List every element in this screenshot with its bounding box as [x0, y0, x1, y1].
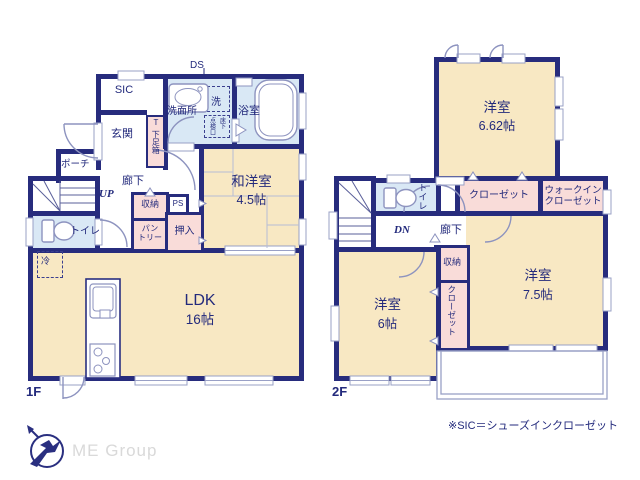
dn-label: DN: [394, 224, 410, 237]
storage-1f-label: 収納: [131, 199, 169, 209]
opening-2fa-door: [436, 177, 464, 185]
arc-entry: [64, 124, 98, 158]
shoe-box-label: 下足箱: [151, 130, 160, 166]
window-bath: [299, 93, 306, 129]
window-2fa-top2: [502, 54, 525, 63]
window-2fa-top1: [457, 54, 480, 63]
opening-kitchen-door: [60, 376, 85, 385]
washroom-label: 洗面所: [167, 106, 197, 118]
brand-logo-text: ME Group: [72, 441, 157, 461]
pantry-label: パントリー: [131, 224, 169, 242]
toilet-2f-bowl: [396, 190, 416, 207]
toilet-1f-label: トイレ: [70, 226, 100, 238]
floor-1f-label: 1F: [26, 385, 41, 400]
window-washitsu-b: [299, 219, 306, 245]
floorplan-canvas: 洗 床下点検口 冷: [0, 0, 640, 480]
up-label: UP: [99, 188, 114, 201]
vanity-tap: [198, 87, 202, 91]
vanity-bowl: [175, 89, 201, 106]
shoe-t-label: T: [147, 118, 165, 127]
bathtub-inner: [259, 84, 293, 136]
ldk-size-label: 16帖: [120, 312, 280, 328]
floor-2f-label: 2F: [332, 385, 347, 400]
ps-label: PS: [167, 199, 189, 208]
arc-washroom: [168, 117, 194, 143]
room-2fb-label: 洋室: [470, 268, 606, 284]
casement-arc-2: [490, 45, 503, 58]
kitchen-faucet: [100, 310, 110, 318]
room-2fc-label: 洋室: [334, 297, 441, 313]
porch-label: ポーチ: [61, 160, 90, 171]
toilet-2f-tank: [384, 188, 396, 208]
window-sic: [118, 71, 144, 80]
arc-ldk: [100, 220, 127, 247]
toilet-2f-label: トイレ: [417, 183, 427, 215]
storage-2f-label: 収納: [434, 257, 470, 267]
sic-label: SIC: [96, 84, 152, 97]
ds-label: DS: [190, 60, 204, 72]
hall-1f-label: 廊下: [122, 175, 144, 188]
genkan-label: 玄関: [98, 128, 146, 141]
ldk-label: LDK: [120, 292, 280, 310]
window-stairs-2f: [329, 212, 337, 239]
room-2fb-size-label: 7.5帖: [470, 288, 606, 302]
arc-2fb: [485, 216, 511, 242]
kitchen: [86, 279, 120, 378]
hall-2f-label: 廊下: [440, 224, 462, 237]
balcony: [437, 351, 607, 399]
wic-label: ウォークインクローゼット: [538, 186, 608, 208]
arc-washitsu: [155, 150, 195, 190]
room-2fa-size-label: 6.62帖: [434, 119, 560, 133]
sic-note: ※SIC＝シューズインクローゼット: [413, 420, 618, 433]
closet-2f-label: クローゼット: [455, 190, 543, 202]
window-toilet-2f: [387, 175, 410, 183]
washitsu-size-label: 4.5帖: [199, 193, 304, 207]
oshiire-label: 押入: [165, 226, 204, 238]
floorplan-linework: [0, 0, 640, 480]
brand-logo-icon: [27, 425, 63, 467]
bath-label: 浴室: [238, 105, 260, 118]
room-2fa-label: 洋室: [434, 100, 560, 116]
arc-2fc: [399, 252, 424, 277]
room-2fc-size-label: 6帖: [334, 317, 441, 331]
window-toilet-1f: [26, 218, 33, 246]
toilet-1f-tank: [42, 220, 54, 242]
closet-2f-v-label: クローゼット: [446, 285, 456, 347]
washitsu-label: 和洋室: [199, 174, 304, 190]
shower-counter-icon: [236, 78, 252, 86]
casement-arc-1: [445, 45, 458, 58]
opening-washroom-door: [168, 143, 194, 151]
